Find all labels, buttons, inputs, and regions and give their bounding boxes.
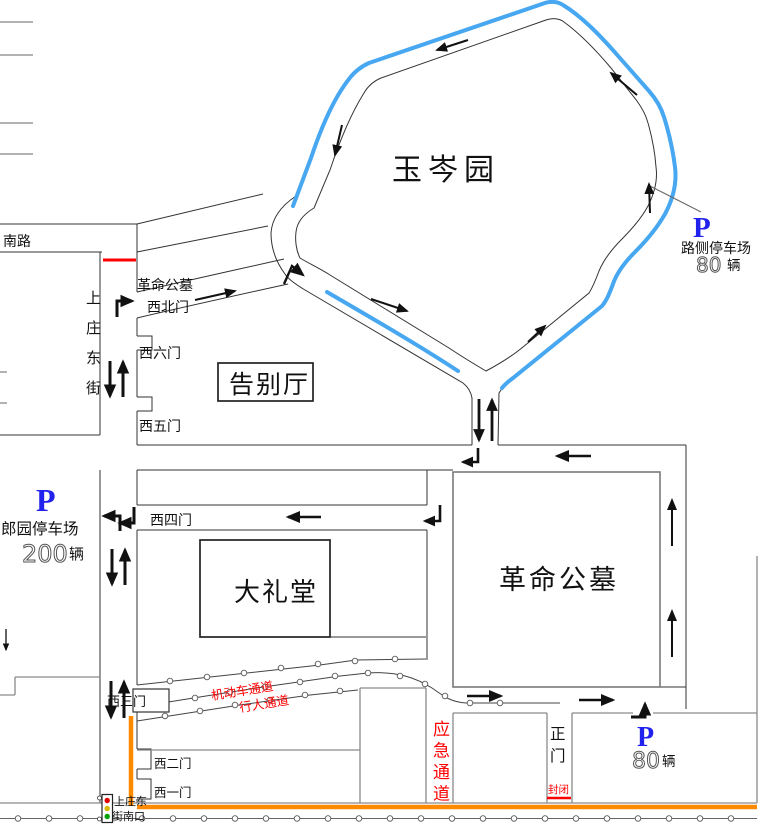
main-gate-parking-count: 80 — [632, 749, 660, 774]
closed-label: 封闭 — [548, 783, 569, 796]
nw-gate-label-line1: 革命公墓 — [137, 277, 193, 294]
langyuan-parking-name: 郎园停车场 — [1, 520, 79, 538]
post-dot — [241, 670, 247, 676]
post-dot — [604, 816, 610, 822]
post-dot — [204, 674, 210, 680]
post-dot — [635, 816, 641, 822]
traffic-light-icon — [98, 795, 113, 823]
langyuan-parking-unit: 辆 — [69, 546, 84, 563]
main-gate-parking-unit: 辆 — [662, 754, 676, 769]
gate-w4-label: 西四门 — [150, 513, 192, 529]
post-dot — [666, 816, 672, 822]
garden-loop-road — [271, 2, 676, 445]
post-dot — [728, 816, 734, 822]
post-dot — [422, 681, 428, 687]
post-dot — [387, 816, 393, 822]
emergency-passage-label: 应急通道 — [433, 720, 450, 804]
post-dot — [365, 670, 371, 676]
post-dot — [46, 816, 52, 822]
post-dot — [263, 816, 269, 822]
post-dot — [197, 708, 203, 714]
post-dot — [511, 816, 517, 822]
post-dot — [162, 713, 168, 719]
post-dot — [325, 816, 331, 822]
intersection-label-line2: 街南口 — [112, 809, 145, 823]
gate-w2-label: 西二门 — [154, 756, 192, 771]
gate-w3-label: 西三门 — [107, 694, 146, 709]
farewell-hall-label: 告别厅 — [229, 371, 310, 399]
intersection-label-line1: 上庄东 — [114, 794, 147, 808]
post-dot — [170, 816, 176, 822]
highlighted-route — [293, 2, 676, 388]
roadside-parking-unit: 辆 — [727, 258, 741, 273]
post-dot — [337, 688, 343, 694]
post-dot — [232, 702, 238, 708]
traffic-guide-map: 玉岑园 革命公墓 大礼堂 告别厅 南路 上庄东街 革命公墓 西北门 西六门 西五… — [0, 0, 761, 835]
post-dot — [467, 700, 473, 706]
roadside-parking-count: 80 — [696, 253, 721, 277]
post-dot — [278, 665, 284, 671]
post-dot — [77, 816, 83, 822]
post-dot — [297, 679, 303, 685]
post-dot — [302, 692, 308, 698]
post-dot — [480, 816, 486, 822]
traffic-flow-arrows — [6, 40, 672, 718]
post-dot — [397, 673, 403, 679]
post-dot — [449, 816, 455, 822]
post-dot — [192, 695, 198, 701]
south-road-label: 南路 — [3, 234, 31, 250]
parking-icon: P — [36, 482, 56, 518]
post-dot — [332, 673, 338, 679]
gate-w5-label: 西五门 — [139, 419, 181, 435]
roadside-parking-label: P 路侧停车场 80 辆 — [681, 212, 751, 277]
garden-label: 玉岑园 — [392, 154, 500, 187]
post-dot — [15, 816, 21, 822]
great-hall-label: 大礼堂 — [234, 578, 318, 607]
gate-notches — [137, 336, 152, 799]
main-gate-label: 正门 — [550, 726, 566, 765]
gate3-lane-roads — [137, 656, 560, 721]
post-dot — [542, 816, 548, 822]
map-edge-ticks — [0, 22, 33, 403]
post-dot — [352, 658, 358, 664]
post-dot — [418, 816, 424, 822]
langyuan-parking-label: P 郎园停车场 200 辆 — [1, 482, 84, 568]
post-dot — [356, 816, 362, 822]
post-dot — [697, 816, 703, 822]
gate-w1-label: 西一门 — [154, 785, 192, 800]
post-dot — [315, 661, 321, 667]
post-dot — [497, 700, 503, 706]
post-dot — [294, 816, 300, 822]
langyuan-parking-count: 200 — [22, 540, 68, 568]
cemetery-label: 革命公墓 — [499, 565, 619, 595]
parking-icon: P — [693, 212, 711, 244]
post-dot — [232, 816, 238, 822]
post-dot — [573, 816, 579, 822]
post-dot — [201, 816, 207, 822]
post-dot — [167, 678, 173, 684]
main-gate-parking-label: P 80 辆 — [632, 722, 676, 774]
post-dot — [442, 693, 448, 699]
gate-w6-label: 西六门 — [139, 346, 181, 362]
nw-gate-label-line2: 西北门 — [147, 300, 189, 316]
street-name-vertical: 上庄东街 — [86, 290, 101, 397]
post-dot — [392, 656, 398, 662]
